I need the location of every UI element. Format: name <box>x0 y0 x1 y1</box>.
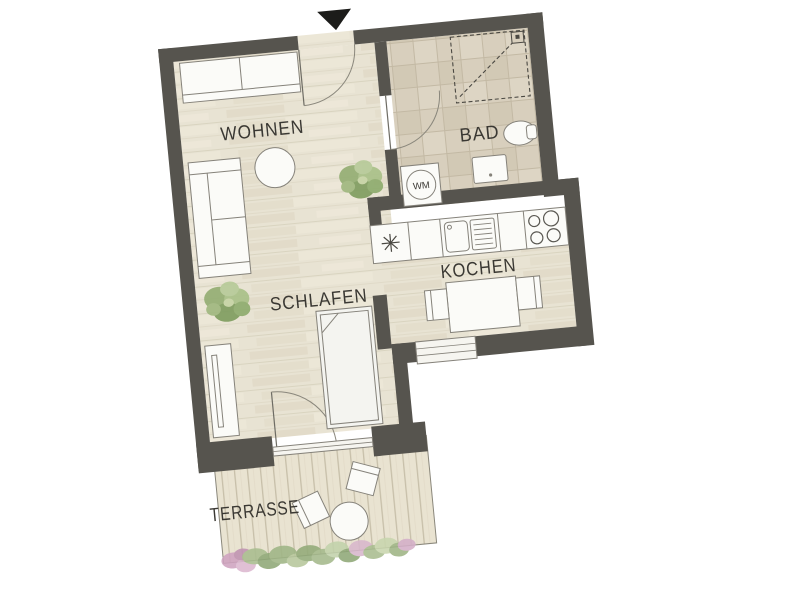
washing-machine-label: WM <box>412 180 430 193</box>
floor-plan-page: WM <box>0 0 793 594</box>
bathroom-door-leaf <box>386 96 391 150</box>
dining-chair-left <box>424 289 449 321</box>
bed <box>316 306 383 429</box>
corner-sofa <box>188 158 251 278</box>
washing-machine: WM <box>400 163 442 206</box>
room-label-bad: BAD <box>459 122 501 147</box>
washbasin <box>472 154 508 183</box>
dining-table <box>446 276 520 332</box>
entrance-arrow-icon <box>317 9 353 32</box>
dining-chair-right <box>516 276 543 310</box>
floor-plan: WM <box>156 0 613 576</box>
floor-plan-canvas: WM <box>0 0 793 594</box>
